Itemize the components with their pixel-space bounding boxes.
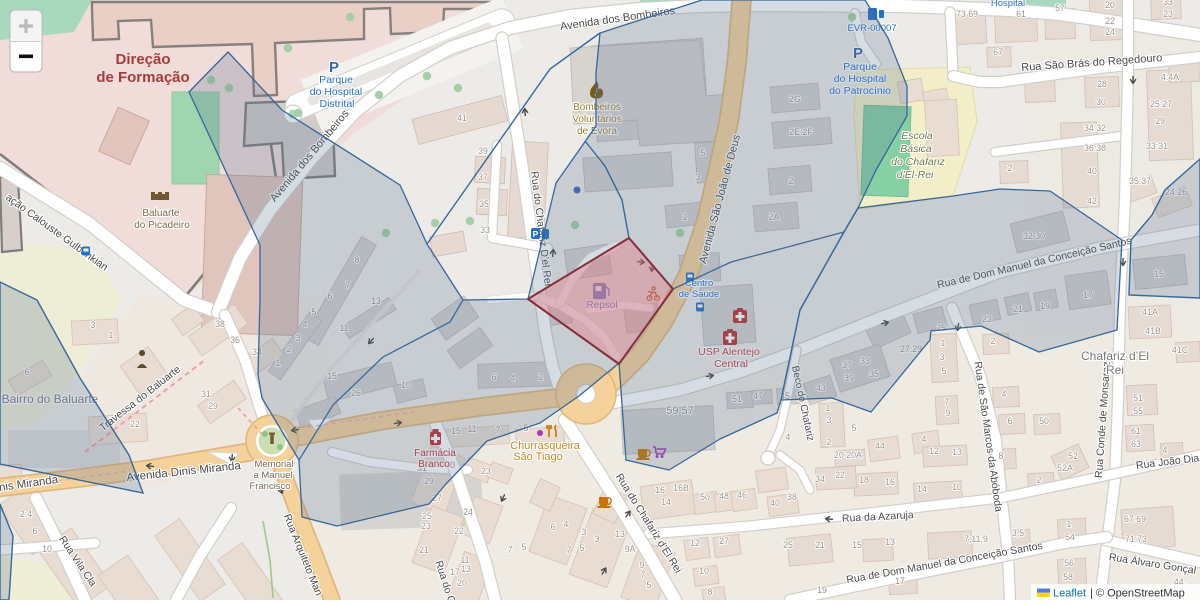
svg-text:d’El-Rei: d’El-Rei (897, 169, 934, 181)
svg-text:52: 52 (1068, 451, 1078, 461)
svg-text:23: 23 (481, 466, 491, 476)
svg-text:19: 19 (817, 585, 827, 595)
svg-text:55: 55 (1133, 406, 1143, 416)
svg-text:22: 22 (1105, 16, 1115, 26)
svg-text:28: 28 (1097, 79, 1107, 89)
svg-text:52A: 52A (1057, 463, 1073, 473)
svg-text:16: 16 (655, 485, 665, 495)
svg-text:37: 37 (478, 172, 488, 182)
svg-text:9: 9 (640, 560, 645, 570)
svg-text:4: 4 (922, 434, 927, 444)
svg-text:3: 3 (940, 352, 945, 362)
svg-text:22: 22 (130, 419, 140, 429)
svg-text:do Picadeiro: do Picadeiro (134, 220, 190, 231)
svg-text:Rei: Rei (1106, 363, 1124, 377)
svg-text:61: 61 (1131, 426, 1141, 436)
svg-text:27: 27 (719, 536, 729, 546)
svg-text:13: 13 (885, 537, 895, 547)
svg-text:18: 18 (859, 475, 869, 485)
svg-text:10: 10 (952, 482, 962, 492)
svg-text:10: 10 (42, 544, 52, 554)
svg-text:10: 10 (699, 566, 709, 576)
svg-text:20 20A: 20 20A (834, 450, 862, 460)
svg-text:38: 38 (215, 319, 225, 329)
svg-text:8: 8 (999, 451, 1004, 461)
svg-text:3: 3 (595, 534, 600, 544)
svg-text:41: 41 (457, 113, 467, 123)
svg-text:20: 20 (1105, 0, 1115, 10)
svg-text:50: 50 (1039, 416, 1049, 426)
svg-text:20: 20 (457, 578, 467, 588)
svg-text:3: 3 (582, 527, 587, 537)
svg-text:5: 5 (647, 580, 652, 590)
svg-text:1: 1 (1067, 519, 1072, 529)
svg-text:Leaflet: Leaflet (1053, 588, 1086, 600)
svg-text:54: 54 (1065, 532, 1075, 542)
svg-text:22: 22 (454, 526, 464, 536)
svg-text:35:37: 35:37 (1129, 176, 1151, 186)
svg-text:56: 56 (1064, 558, 1074, 568)
svg-text:2: 2 (1008, 163, 1013, 173)
svg-text:7: 7 (945, 397, 950, 407)
svg-text:57: 57 (1055, 3, 1065, 13)
svg-text:15: 15 (852, 540, 862, 550)
svg-text:23: 23 (1163, 9, 1173, 19)
svg-text:63: 63 (1131, 439, 1141, 449)
svg-text:7;11;9: 7;11;9 (964, 534, 988, 544)
svg-text:71:73: 71:73 (1125, 534, 1147, 544)
svg-text:2:4: 2:4 (20, 509, 32, 519)
svg-text:24: 24 (1105, 27, 1115, 37)
svg-text:41B: 41B (1145, 326, 1161, 336)
svg-text:14: 14 (661, 497, 671, 507)
svg-text:44: 44 (875, 441, 885, 451)
svg-text:40: 40 (1087, 166, 1097, 176)
svg-text:33:31: 33:31 (1146, 141, 1168, 151)
svg-text:Direção: Direção (115, 51, 170, 68)
svg-text:39: 39 (478, 146, 488, 156)
svg-text:São Tiago: São Tiago (513, 451, 563, 463)
svg-text:P: P (533, 229, 539, 239)
svg-text:21: 21 (815, 540, 825, 550)
svg-text:Baluarte: Baluarte (142, 208, 180, 219)
svg-text:4: 4 (1002, 389, 1007, 399)
svg-text:Francisco: Francisco (249, 481, 290, 492)
svg-text:Memorial: Memorial (254, 459, 293, 470)
svg-text:50: 50 (700, 492, 710, 502)
svg-text:5: 5 (942, 366, 947, 376)
svg-text:41A: 41A (1142, 307, 1158, 317)
svg-text:4: 4 (786, 432, 791, 442)
svg-text:40: 40 (770, 498, 780, 508)
svg-text:4: 4 (1163, 445, 1168, 455)
svg-text:Parque: Parque (319, 74, 353, 86)
svg-text:Distrital: Distrital (319, 98, 354, 110)
svg-text:1: 1 (109, 330, 114, 340)
svg-text:5: 5 (580, 543, 585, 553)
svg-text:34: 34 (815, 474, 825, 484)
svg-text:22: 22 (835, 470, 845, 480)
svg-text:Hospital: Hospital (991, 0, 1025, 9)
svg-text:5: 5 (522, 542, 527, 552)
svg-text:3: 3 (827, 415, 832, 425)
svg-text:46: 46 (737, 490, 747, 500)
svg-text:33: 33 (1163, 0, 1173, 7)
svg-text:4:4A: 4:4A (1161, 72, 1179, 82)
svg-text:13: 13 (952, 447, 962, 457)
svg-text:3,5: 3,5 (1012, 528, 1024, 538)
svg-text:21: 21 (419, 545, 429, 555)
svg-text:23: 23 (421, 521, 431, 531)
svg-text:51: 51 (1133, 393, 1143, 403)
svg-text:12: 12 (690, 538, 700, 548)
svg-text:48: 48 (719, 491, 729, 501)
svg-text:3: 3 (91, 320, 96, 330)
svg-text:9: 9 (946, 408, 951, 418)
svg-text:34:32: 34:32 (1084, 123, 1106, 133)
svg-text:25: 25 (783, 540, 793, 550)
svg-text:7: 7 (508, 545, 513, 555)
svg-text:42: 42 (1087, 196, 1097, 206)
svg-text:2: 2 (991, 336, 996, 346)
svg-text:13: 13 (615, 529, 625, 539)
svg-text:73 69: 73 69 (956, 9, 978, 19)
svg-text:67: 67 (993, 47, 1003, 57)
svg-text:33: 33 (480, 225, 490, 235)
svg-text:31: 31 (201, 389, 211, 399)
svg-text:36: 36 (230, 335, 240, 345)
svg-text:16B: 16B (673, 483, 689, 493)
svg-text:29: 29 (1155, 116, 1165, 126)
svg-text:do Chafariz: do Chafariz (891, 156, 945, 168)
svg-text:17: 17 (450, 567, 460, 577)
svg-text:a Manuel: a Manuel (253, 470, 292, 481)
svg-text:25:27: 25:27 (1150, 99, 1172, 109)
svg-text:13: 13 (461, 564, 471, 574)
svg-text:6: 6 (1008, 416, 1013, 426)
svg-text:30: 30 (1096, 97, 1106, 107)
svg-text:6: 6 (551, 522, 556, 532)
svg-text:de Formação: de Formação (96, 69, 189, 86)
svg-text:41C: 41C (1172, 345, 1189, 355)
svg-text:36:38: 36:38 (1084, 143, 1106, 153)
svg-text:5: 5 (852, 423, 857, 433)
svg-text:16: 16 (885, 477, 895, 487)
svg-text:14: 14 (917, 484, 927, 494)
svg-text:58: 58 (1063, 572, 1073, 582)
svg-text:38: 38 (787, 492, 797, 502)
svg-text:| © OpenStreetMap: | © OpenStreetMap (1090, 588, 1185, 600)
svg-text:24: 24 (463, 507, 473, 517)
svg-text:29: 29 (208, 401, 218, 411)
svg-text:2: 2 (1037, 475, 1042, 485)
svg-text:61: 61 (1016, 9, 1026, 19)
svg-text:12: 12 (929, 446, 939, 456)
svg-text:1: 1 (941, 338, 946, 348)
svg-text:8: 8 (708, 587, 713, 597)
svg-text:2: 2 (827, 437, 832, 447)
svg-text:17: 17 (895, 576, 905, 586)
svg-text:1: 1 (826, 403, 831, 413)
svg-text:4: 4 (564, 519, 569, 529)
svg-text:6: 6 (33, 526, 38, 536)
svg-text:do Hospital: do Hospital (310, 86, 363, 98)
svg-text:35: 35 (479, 199, 489, 209)
svg-text:Escola: Escola (901, 130, 933, 142)
svg-text:67:69: 67:69 (1124, 514, 1146, 524)
svg-text:7: 7 (567, 545, 572, 555)
svg-text:Chafariz d’El: Chafariz d’El (1081, 349, 1149, 363)
svg-text:25: 25 (422, 511, 432, 521)
svg-text:9A: 9A (625, 544, 636, 554)
svg-text:7: 7 (641, 570, 646, 580)
svg-text:Básica: Básica (900, 143, 932, 155)
